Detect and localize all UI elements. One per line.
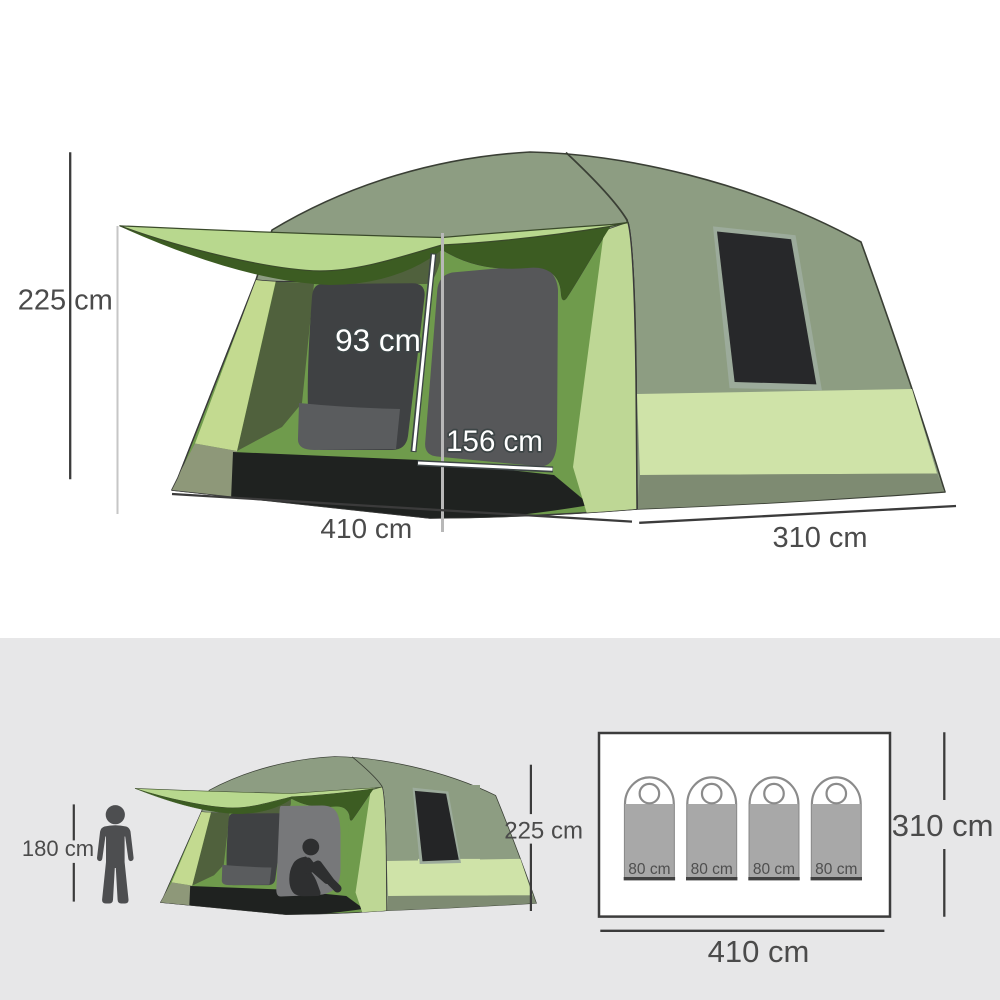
svg-text:410 cm: 410 cm [708,934,810,969]
svg-text:225 cm: 225 cm [504,817,583,844]
svg-text:410 cm: 410 cm [320,513,412,544]
svg-text:93 cm: 93 cm [335,322,421,358]
svg-text:310 cm: 310 cm [772,522,867,554]
svg-text:156 cm: 156 cm [446,425,543,458]
svg-text:80 cm: 80 cm [628,861,670,878]
svg-text:180 cm: 180 cm [22,836,94,861]
svg-text:225 cm: 225 cm [18,285,113,317]
svg-text:310 cm: 310 cm [892,808,994,843]
